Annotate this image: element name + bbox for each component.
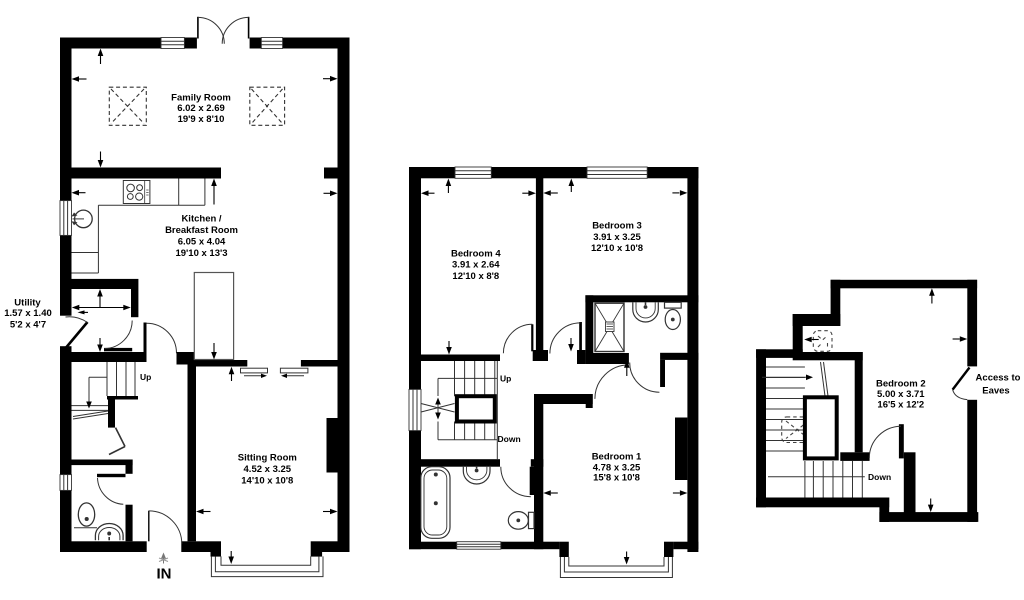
svg-text:14'10 x 10'8: 14'10 x 10'8	[241, 476, 293, 487]
svg-text:12'10 x 10'8: 12'10 x 10'8	[591, 243, 643, 254]
svg-text:Eaves: Eaves	[982, 386, 1009, 397]
svg-text:5.00 x 3.71: 5.00 x 3.71	[877, 389, 925, 400]
svg-text:Breakfast Room: Breakfast Room	[165, 225, 238, 236]
svg-text:3.91 x 2.64: 3.91 x 2.64	[452, 260, 500, 271]
svg-text:Bedroom 2: Bedroom 2	[876, 379, 926, 390]
svg-text:6.05 x 4.04: 6.05 x 4.04	[178, 236, 226, 247]
svg-text:IN: IN	[157, 566, 172, 583]
svg-text:1.57 x 1.40: 1.57 x 1.40	[4, 308, 52, 319]
svg-text:Bedroom 4: Bedroom 4	[451, 249, 501, 260]
svg-text:Bedroom 3: Bedroom 3	[592, 221, 642, 232]
svg-text:Family Room: Family Room	[171, 93, 231, 104]
svg-text:16'5 x 12'2: 16'5 x 12'2	[877, 400, 924, 411]
svg-text:Up: Up	[140, 372, 151, 382]
svg-text:19'10 x 13'3: 19'10 x 13'3	[175, 248, 227, 259]
svg-text:19'9 x 8'10: 19'9 x 8'10	[178, 114, 225, 125]
svg-text:5'2 x 4'7: 5'2 x 4'7	[10, 319, 46, 330]
svg-text:Down: Down	[498, 434, 521, 444]
svg-text:6.02 x 2.69: 6.02 x 2.69	[177, 103, 225, 114]
svg-text:Access to: Access to	[976, 373, 1021, 384]
svg-text:12'10 x 8'8: 12'10 x 8'8	[452, 271, 499, 282]
svg-text:Bedroom 1: Bedroom 1	[592, 452, 642, 463]
svg-text:Down: Down	[868, 472, 891, 482]
svg-text:Up: Up	[500, 374, 511, 384]
svg-text:Kitchen /: Kitchen /	[181, 214, 221, 225]
svg-text:15'8 x 10'8: 15'8 x 10'8	[593, 473, 640, 484]
svg-text:Sitting Room: Sitting Room	[238, 453, 297, 464]
svg-text:3.91 x 3.25: 3.91 x 3.25	[593, 232, 641, 243]
svg-text:4.52 x 3.25: 4.52 x 3.25	[244, 464, 292, 475]
